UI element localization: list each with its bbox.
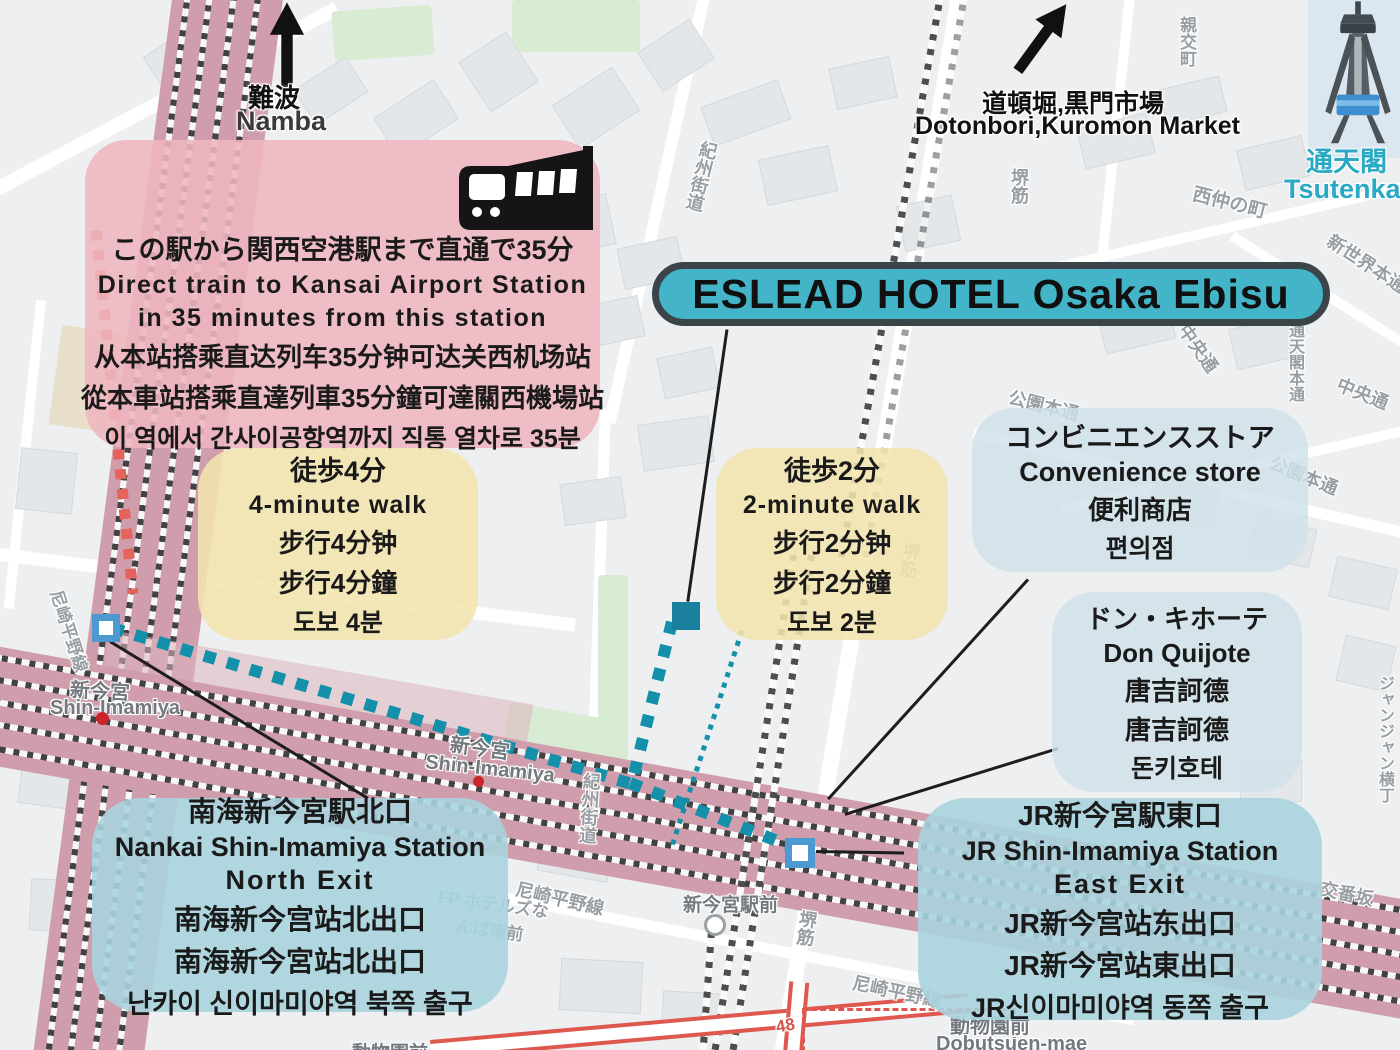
- walk-4min-line: 步行4分钟: [279, 523, 397, 560]
- convenience-line: Convenience store: [1019, 457, 1261, 488]
- airport-info-box: この駅から関西空港駅まで直通で35分 Direct train to Kansa…: [85, 140, 600, 448]
- jr-exit-line: JR신이마미야역 동쪽 출구: [971, 986, 1269, 1025]
- street-label-shinko: 親交町: [1174, 16, 1199, 67]
- hotel-title-pill: ESLEAD HOTEL Osaka Ebisu: [652, 262, 1330, 326]
- street-label-kishu-kaido-1: 紀州街道: [680, 138, 723, 214]
- street-label-sakaisuji-3: 堺筋: [791, 908, 822, 947]
- street-label-tsutenkaku-hondori: 通天閣本通: [1282, 322, 1306, 402]
- station-label-front: 新今宮駅前: [683, 890, 778, 917]
- convenience-line: 편의점: [1105, 529, 1174, 565]
- jr-exit-line: JR Shin-Imamiya Station: [962, 836, 1279, 867]
- jr-east-exit-marker: [785, 838, 815, 868]
- nankai-exit-line: 난카이 신이마미야역 북쪽 출구: [127, 982, 472, 1021]
- convenience-line: コンビニエンスストア: [1005, 416, 1274, 455]
- nankai-north-exit-marker: [92, 614, 120, 642]
- street-label-shinsekai: 新世界本通: [1322, 228, 1400, 299]
- street-label-chuo-1: 中央通: [1173, 318, 1225, 377]
- station-label-dobutsuen-en: Dobutsuen-mae: [936, 1033, 1087, 1050]
- nankai-exit-line: 南海新今宮站北出口: [174, 940, 426, 980]
- nankai-exit-box: 南海新今宮駅北口 Nankai Shin-Imamiya Station Nor…: [92, 798, 508, 1012]
- walk-4min-line: 徒歩4分: [290, 449, 386, 488]
- donki-line: 돈키호테: [1131, 749, 1223, 785]
- airport-note-line: in 35 minutes from this station: [138, 304, 547, 333]
- jr-exit-box: JR新今宮駅東口 JR Shin-Imamiya Station East Ex…: [918, 798, 1322, 1020]
- station-dot-center: [473, 776, 484, 787]
- hotel-location-marker: [672, 602, 700, 630]
- dotonbori-label-en: Dotonbori,Kuromon Market: [915, 112, 1240, 141]
- nankai-exit-line: 南海新今宮駅北口: [188, 790, 412, 830]
- convenience-store-box: コンビニエンスストア Convenience store 便利商店 편의점: [972, 408, 1308, 572]
- namba-label-en: Namba: [236, 106, 326, 137]
- street-label-kishu-kaido-2: 紀州街道: [574, 771, 605, 845]
- street-label-sakaisuji-1: 堺筋: [1006, 168, 1032, 204]
- don-quijote-box: ドン・キホーテ Don Quijote 唐吉訶德 唐吉訶德 돈키호테: [1052, 592, 1302, 792]
- street-label-janjan: ジャンジャン横丁: [1372, 675, 1396, 803]
- walk-2min-line: 步行2分钟: [773, 523, 891, 560]
- jr-exit-line: JR新今宮駅東口: [1018, 794, 1222, 834]
- station-label-shin-imamiya-west-en: Shin-Imamiya: [50, 697, 180, 720]
- map-canvas: 紀州街道 紀州街道 堺筋 堺筋 堺筋 西仲の町 新世界本通 中央通 中央通 公園…: [0, 0, 1400, 1050]
- donki-line: 唐吉訶德: [1125, 671, 1229, 708]
- airport-note-line: Direct train to Kansai Airport Station: [98, 271, 587, 300]
- convenience-line: 便利商店: [1088, 490, 1192, 527]
- street-label-chuo-2: 中央通: [1333, 371, 1393, 415]
- walk-2min-line: 徒歩2分: [784, 449, 880, 488]
- jr-exit-line: JR新今宮站東出口: [1004, 944, 1236, 984]
- airport-note-line: 从本站搭乘直达列车35分钟可达关西机场站: [94, 337, 591, 374]
- nankai-exit-line: 南海新今宫站北出口: [174, 898, 426, 938]
- station-dot-west: [96, 712, 109, 725]
- walk-route-hotel: [627, 621, 678, 782]
- airport-note-line: この駅から関西空港駅まで直通で35分: [111, 228, 573, 267]
- nankai-exit-line: Nankai Shin-Imamiya Station: [115, 832, 486, 863]
- tsutenkaku-tower-icon: [1316, 0, 1400, 152]
- jr-exit-line: JR新今宫站东出口: [1004, 902, 1236, 942]
- walk-2min-box: 徒歩2分 2-minute walk 步行2分钟 步行2分鐘 도보 2분: [716, 448, 948, 640]
- walk-4min-line: 도보 4분: [293, 603, 383, 639]
- walk-4min-box: 徒歩4分 4-minute walk 步行4分钟 步行4分鐘 도보 4분: [198, 448, 478, 640]
- station-label-dobutsuen-2: 動物園前: [352, 1038, 428, 1050]
- walk-2min-line: 도보 2분: [787, 603, 877, 639]
- jr-exit-line: East Exit: [1054, 869, 1186, 900]
- donki-line: 唐吉訶德: [1125, 710, 1229, 747]
- walk-4min-line: 步行4分鐘: [279, 563, 397, 600]
- route-48-label: 48: [774, 1015, 796, 1038]
- donki-line: ドン・キホーテ: [1086, 599, 1268, 636]
- dotonbori-arrow-icon: [1000, 0, 1081, 85]
- walk-2min-line: 步行2分鐘: [773, 563, 891, 600]
- nankai-exit-line: North Exit: [225, 865, 374, 896]
- tsutenkaku-label-en: Tsutenkaku: [1284, 174, 1400, 205]
- walk-4min-line: 4-minute walk: [249, 491, 427, 520]
- airport-note-line: 從本車站搭乘直達列車35分鐘可達關西機場站: [81, 378, 604, 415]
- train-icon: [453, 144, 603, 232]
- donki-line: Don Quijote: [1103, 638, 1250, 669]
- walk-2min-line: 2-minute walk: [743, 491, 921, 520]
